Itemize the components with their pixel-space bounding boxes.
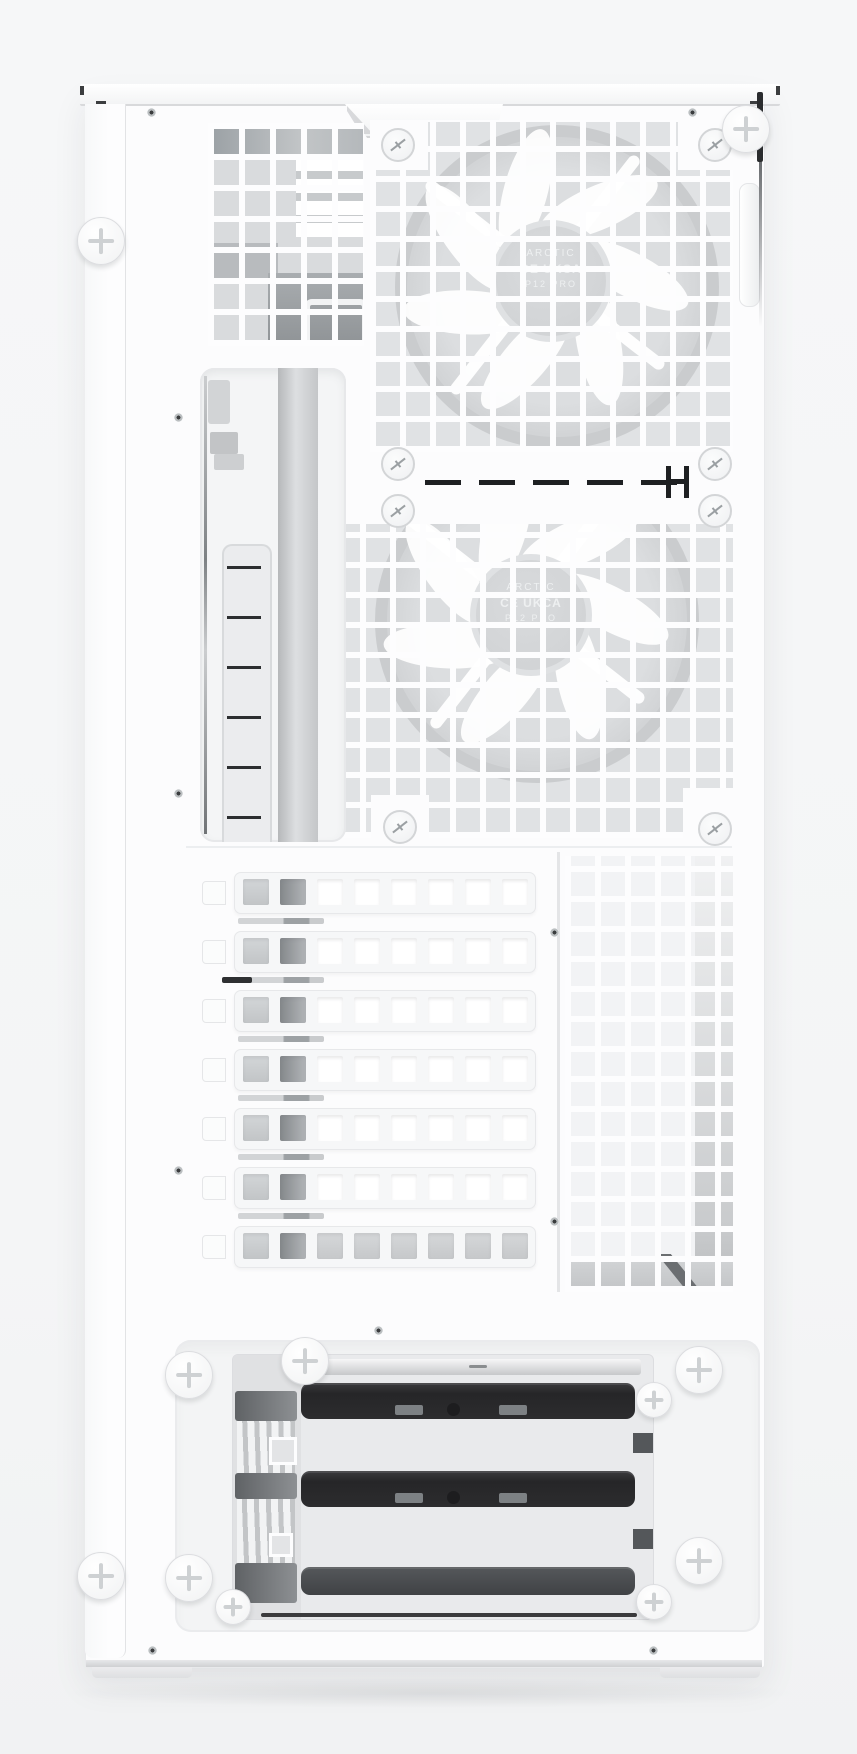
bay-thumbscrew	[165, 1554, 213, 1602]
fan-strut	[423, 178, 549, 280]
panel-gap-shadow	[759, 162, 762, 327]
fan-blade	[565, 275, 632, 409]
slot-vent	[391, 997, 417, 1023]
slot-vent	[465, 1174, 491, 1200]
side-panel-thumbscrew	[77, 217, 125, 265]
fan-blade	[392, 524, 503, 636]
slot-vent	[243, 1056, 269, 1082]
fan-blade	[403, 288, 533, 337]
lower-right-vent-mesh	[565, 856, 733, 1292]
bay-thumbscrew-small	[215, 1589, 251, 1625]
bracket-slot-tick	[227, 666, 261, 669]
panel-seam-tick	[80, 86, 84, 95]
fan-cable	[425, 480, 685, 485]
fan-screw	[381, 494, 415, 528]
slot-vent	[354, 1233, 380, 1259]
slot-separator	[238, 1213, 324, 1219]
slot-vent	[502, 1056, 528, 1082]
fan-blade	[467, 296, 584, 422]
slot-vent	[354, 938, 380, 964]
slot-vent	[502, 938, 528, 964]
bracket-slot-tick	[227, 816, 261, 819]
bay-thumbscrew	[165, 1351, 213, 1399]
rivet	[147, 108, 156, 117]
inner-block	[208, 380, 230, 424]
slot-vent	[280, 938, 306, 964]
slot-vent	[317, 1174, 343, 1200]
slot-vent	[465, 879, 491, 905]
slot-vent	[428, 938, 454, 964]
slot-cover-tab	[202, 1235, 226, 1259]
rear-panel-ridge	[739, 183, 760, 307]
slot-cover-tab	[202, 999, 226, 1023]
fan-blade	[383, 622, 513, 671]
slot-vent	[317, 879, 343, 905]
fan-strut	[428, 605, 530, 731]
slot-vent	[243, 997, 269, 1023]
expansion-slot-cover	[234, 1108, 536, 1150]
expansion-slot-cover	[234, 1049, 536, 1091]
bracket-slot-tick	[227, 766, 261, 769]
slot-vent	[428, 1056, 454, 1082]
side-panel-edge-strip	[85, 104, 126, 1658]
cage-screw-hole	[269, 1437, 297, 1465]
slot-vent	[354, 1056, 380, 1082]
slot-vent	[317, 997, 343, 1023]
inner-slot-bracket	[222, 544, 272, 842]
top-left-vent-mesh	[208, 123, 364, 346]
slot-vent	[317, 938, 343, 964]
slot-vent	[502, 997, 528, 1023]
middle-fan-frame	[375, 524, 699, 783]
fan-screw	[381, 128, 415, 162]
slot-vent	[354, 997, 380, 1023]
middle-fan-hub: ARCTIC CE UKCA P12 PRO	[470, 554, 592, 676]
slot-vent	[391, 1056, 417, 1082]
slot-vent	[243, 938, 269, 964]
slot-vent	[428, 879, 454, 905]
fan-blade	[545, 609, 612, 743]
fan-strut	[520, 524, 622, 613]
slot-separator	[238, 1095, 324, 1101]
slot-vent	[428, 1115, 454, 1141]
slot-vent	[317, 1115, 343, 1141]
inner-gray-rail	[278, 368, 318, 842]
slot-vent	[243, 879, 269, 905]
cage-dark-hole	[633, 1529, 653, 1549]
rivet	[374, 1326, 383, 1335]
slot-vent	[243, 1115, 269, 1141]
slot-vent	[317, 1233, 343, 1259]
drive-cage	[232, 1354, 654, 1620]
slot-vent	[280, 1233, 306, 1259]
middle-fan-mesh: ARCTIC CE UKCA P12 PRO	[330, 524, 733, 838]
fan-blade	[412, 173, 523, 302]
fan-cable-connector	[671, 479, 685, 484]
bay-thumbscrew	[281, 1337, 329, 1385]
panel-seam-tick	[776, 86, 780, 95]
fan-blade	[531, 162, 666, 254]
fan-blade	[447, 630, 564, 756]
fan-screw	[698, 447, 732, 481]
slot-cover-tab	[202, 940, 226, 964]
fan-blade	[511, 524, 646, 587]
cage-screw-hole	[269, 1533, 293, 1557]
slot-vent	[391, 1115, 417, 1141]
drive-tray	[301, 1567, 635, 1595]
rivet	[649, 1646, 658, 1655]
slot-separator-dark	[222, 977, 252, 983]
slot-vent	[465, 1056, 491, 1082]
expansion-slot-cover	[234, 872, 536, 914]
fan-screw	[698, 812, 732, 846]
slot-separator	[238, 1036, 324, 1042]
case-bottom-edge	[86, 1660, 762, 1667]
case-foot	[660, 1667, 760, 1678]
inner-block	[214, 454, 244, 470]
rivet	[174, 1166, 183, 1175]
io-cutout-window	[200, 368, 346, 842]
ground-shadow	[60, 1678, 800, 1708]
cage-cable-column	[233, 1355, 301, 1619]
slot-vent	[354, 879, 380, 905]
slot-vent	[465, 1115, 491, 1141]
slot-vent	[280, 997, 306, 1023]
slot-vent	[391, 938, 417, 964]
top-fan-frame	[395, 125, 719, 449]
slot-vent	[317, 1056, 343, 1082]
side-panel-thumbscrew	[722, 105, 770, 153]
rivet	[688, 108, 697, 117]
slot-vent	[428, 1233, 454, 1259]
rivet	[148, 1646, 157, 1655]
bay-thumbscrew-small	[636, 1382, 672, 1418]
rivet	[550, 928, 559, 937]
slot-cover-tab	[202, 1117, 226, 1141]
bracket-slot-tick	[227, 716, 261, 719]
vertical-divider	[557, 852, 560, 1292]
slot-vent	[391, 1174, 417, 1200]
cage-dark-hole	[633, 1433, 653, 1453]
fan-strut	[541, 270, 667, 372]
slot-vent	[502, 1115, 528, 1141]
drive-tray	[301, 1471, 635, 1507]
slot-vent	[280, 1174, 306, 1200]
slot-vent	[243, 1233, 269, 1259]
bay-thumbscrew	[675, 1537, 723, 1585]
slot-vent	[280, 1056, 306, 1082]
slot-vent	[280, 879, 306, 905]
fan-strut	[403, 524, 529, 614]
slot-separator	[238, 918, 324, 924]
top-fan-hub: ARCTIC CE UKCA P12 PRO	[490, 220, 612, 342]
fan-strut	[448, 271, 550, 397]
rivet	[174, 789, 183, 798]
fan-blade	[488, 124, 564, 259]
slot-separator	[238, 1154, 324, 1160]
fan-blade	[468, 524, 544, 593]
inner-edge-line	[204, 376, 207, 834]
slot-vent	[502, 1233, 528, 1259]
panel-section-divider	[186, 846, 732, 848]
fan-screw	[698, 494, 732, 528]
cage-bottom-rail	[261, 1613, 637, 1617]
slot-vent	[428, 997, 454, 1023]
slot-vent	[391, 879, 417, 905]
bay-thumbscrew-small	[636, 1584, 672, 1620]
rivet	[550, 1217, 559, 1226]
slot-vent	[465, 1233, 491, 1259]
fan-blade	[544, 560, 678, 659]
drive-tray	[301, 1383, 635, 1419]
slot-cover-tab	[202, 1176, 226, 1200]
slot-vent	[428, 1174, 454, 1200]
slot-vent	[465, 997, 491, 1023]
fan-strut	[540, 153, 642, 279]
fan-screw	[383, 810, 417, 844]
slot-vent	[502, 1174, 528, 1200]
expansion-slot-cover	[234, 990, 536, 1032]
rivet	[174, 413, 183, 422]
fan-screw	[381, 447, 415, 481]
slot-vent	[502, 879, 528, 905]
slot-vent	[391, 1233, 417, 1259]
side-panel-thumbscrew	[77, 1552, 125, 1600]
slot-cover-tab	[202, 881, 226, 905]
fan-cable-connector	[684, 466, 689, 498]
fan-strut	[521, 604, 647, 706]
slot-vent	[280, 1115, 306, 1141]
bracket-slot-tick	[227, 566, 261, 569]
cage-top-rail	[319, 1359, 641, 1375]
slot-vent	[465, 938, 491, 964]
slot-vent	[243, 1174, 269, 1200]
slot-vent	[354, 1115, 380, 1141]
slot-cover-tab	[202, 1058, 226, 1082]
expansion-slot-cover	[234, 931, 536, 973]
bay-thumbscrew	[675, 1346, 723, 1394]
expansion-slot-cover	[234, 1167, 536, 1209]
bracket-slot-tick	[227, 616, 261, 619]
fan-blade	[564, 226, 698, 325]
case-foot	[92, 1667, 192, 1678]
inner-block	[210, 432, 238, 454]
product-photo-pc-case: ARCTIC CE UKCA P12 PRO ARCTIC CE UKCA P1…	[0, 0, 857, 1754]
expansion-slot-cover	[234, 1226, 536, 1268]
case-top-lip	[80, 84, 780, 106]
slot-vent	[354, 1174, 380, 1200]
